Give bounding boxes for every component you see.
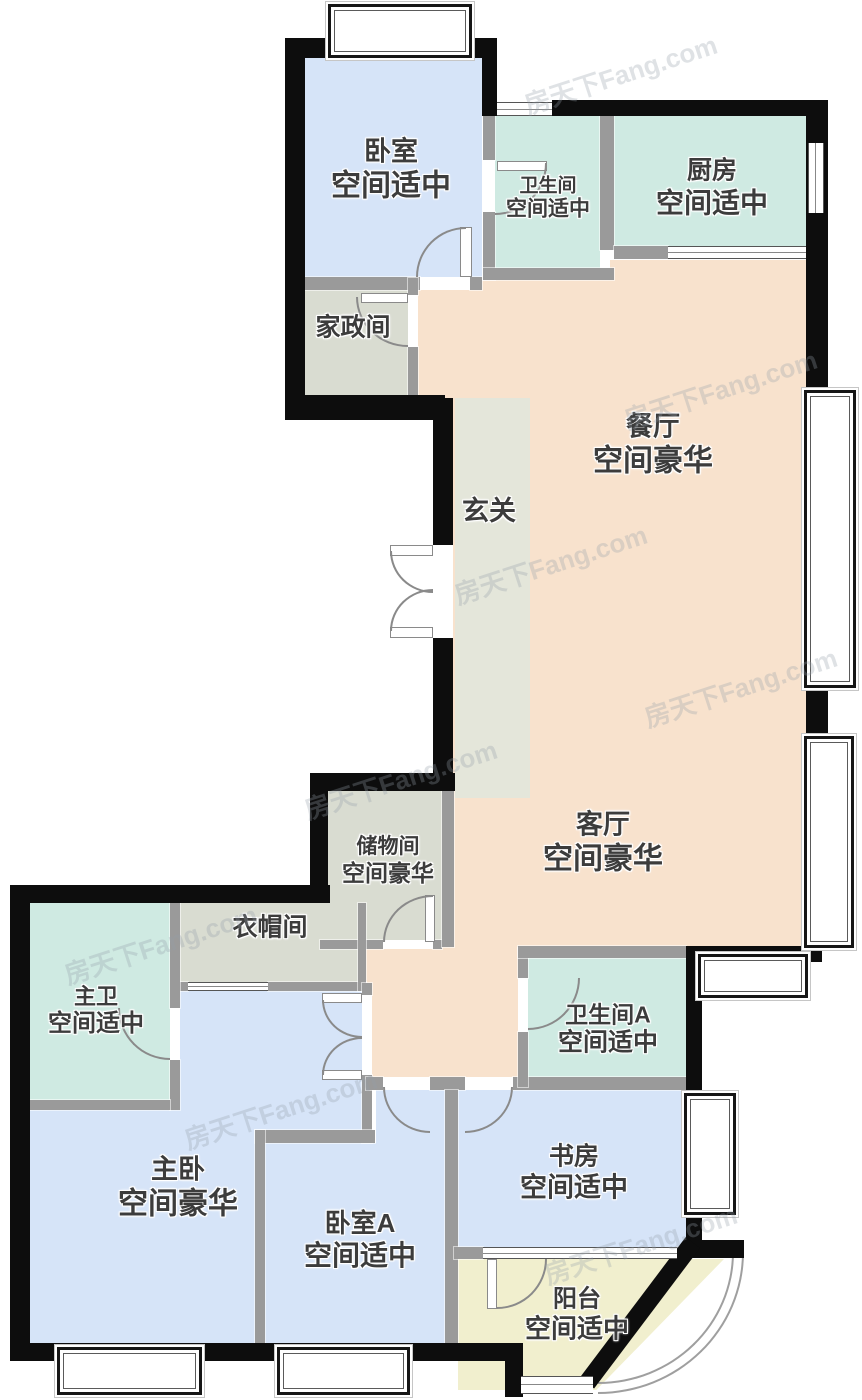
room-label-kitchen: 厨房空间适中 xyxy=(656,157,768,220)
interior-wall xyxy=(170,1060,180,1110)
exterior-wall xyxy=(285,38,305,398)
window-band xyxy=(668,246,806,259)
interior-wall xyxy=(358,903,366,991)
interior-wall xyxy=(430,1077,465,1090)
room-label-bedroom-a: 卧室A空间适中 xyxy=(304,1208,416,1272)
interior-wall xyxy=(255,1130,265,1343)
window-band xyxy=(497,102,552,116)
floor-plan: 卧室空间适中 卫生间空间适中 厨房空间适中 家政间 餐厅空间豪华 玄关 客厅空间… xyxy=(0,0,862,1400)
exterior-wall xyxy=(310,773,455,791)
door-gap-bedroom xyxy=(420,277,470,290)
exterior-wall xyxy=(806,948,822,962)
interior-wall xyxy=(518,1032,528,1087)
window-band xyxy=(808,143,824,213)
room-label-cloakroom: 衣帽间 xyxy=(232,913,307,943)
window-band xyxy=(521,1376,593,1394)
window-band xyxy=(483,1247,677,1259)
interior-wall xyxy=(320,940,383,949)
room-label-storage: 储物间空间豪华 xyxy=(342,835,434,887)
exterior-wall xyxy=(433,638,453,775)
interior-wall xyxy=(442,788,454,947)
interior-wall xyxy=(170,903,180,1008)
room-fill-master-bedroom xyxy=(30,1110,255,1343)
room-label-balcony: 阳台空间适中 xyxy=(525,1286,629,1345)
room-label-master-bath: 主卫空间适中 xyxy=(48,984,144,1038)
sliding-opening xyxy=(188,982,268,991)
interior-wall xyxy=(518,946,686,958)
bay-window xyxy=(684,1093,736,1215)
exterior-wall xyxy=(285,395,445,420)
room-fill-hallway xyxy=(366,947,528,1077)
interior-wall xyxy=(454,1247,483,1259)
interior-wall xyxy=(513,1077,686,1090)
interior-wall xyxy=(600,115,614,250)
room-label-foyer: 玄关 xyxy=(462,496,516,528)
exterior-wall xyxy=(552,100,828,116)
door-arc xyxy=(390,589,433,631)
room-label-master-bedroom: 主卧空间豪华 xyxy=(118,1154,238,1221)
room-label-housekeeping: 家政间 xyxy=(315,313,390,343)
interior-wall xyxy=(180,982,188,991)
interior-wall xyxy=(614,246,668,259)
door-gap-master-suite xyxy=(362,995,372,1075)
room-label-dining: 餐厅空间豪华 xyxy=(593,411,713,478)
interior-wall xyxy=(445,1090,458,1343)
interior-wall xyxy=(255,1130,375,1143)
room-label-bathroom-a: 卫生间A空间适中 xyxy=(558,1002,658,1059)
room-label-bathroom: 卫生间空间适中 xyxy=(506,175,590,222)
exterior-wall xyxy=(10,885,330,903)
door-gap-entrance xyxy=(433,545,453,638)
interior-wall xyxy=(362,983,372,995)
exterior-wall xyxy=(10,885,30,1361)
window xyxy=(277,1347,410,1395)
exterior-wall xyxy=(310,773,328,887)
bay-window xyxy=(698,954,808,998)
window xyxy=(328,4,472,58)
exterior-wall xyxy=(433,398,453,545)
door-arc xyxy=(390,551,433,593)
exterior-wall xyxy=(806,688,828,738)
interior-wall xyxy=(483,268,614,280)
interior-wall xyxy=(300,277,420,290)
room-fill-foyer xyxy=(455,398,530,798)
door-gap-master-bath xyxy=(170,1008,180,1060)
room-fill-dining-2 xyxy=(416,280,610,400)
door-leaf xyxy=(487,1259,497,1309)
interior-wall xyxy=(408,278,418,295)
window xyxy=(57,1347,202,1395)
exterior-wall xyxy=(482,38,497,116)
room-label-living: 客厅空间豪华 xyxy=(543,809,663,876)
bay-window xyxy=(804,736,854,948)
bay-window xyxy=(804,390,856,688)
door-gap-housekeeping xyxy=(408,295,418,347)
interior-wall xyxy=(408,347,418,395)
interior-wall xyxy=(366,1077,383,1090)
interior-wall xyxy=(483,116,495,160)
door-gap-bathroom-a xyxy=(518,978,528,1032)
interior-wall xyxy=(30,1100,170,1110)
interior-wall xyxy=(470,277,482,290)
room-label-bedroom: 卧室空间适中 xyxy=(331,136,451,203)
room-label-study: 书房空间适中 xyxy=(520,1142,628,1203)
room-fill-dining-1 xyxy=(610,260,806,400)
interior-wall xyxy=(268,982,366,991)
